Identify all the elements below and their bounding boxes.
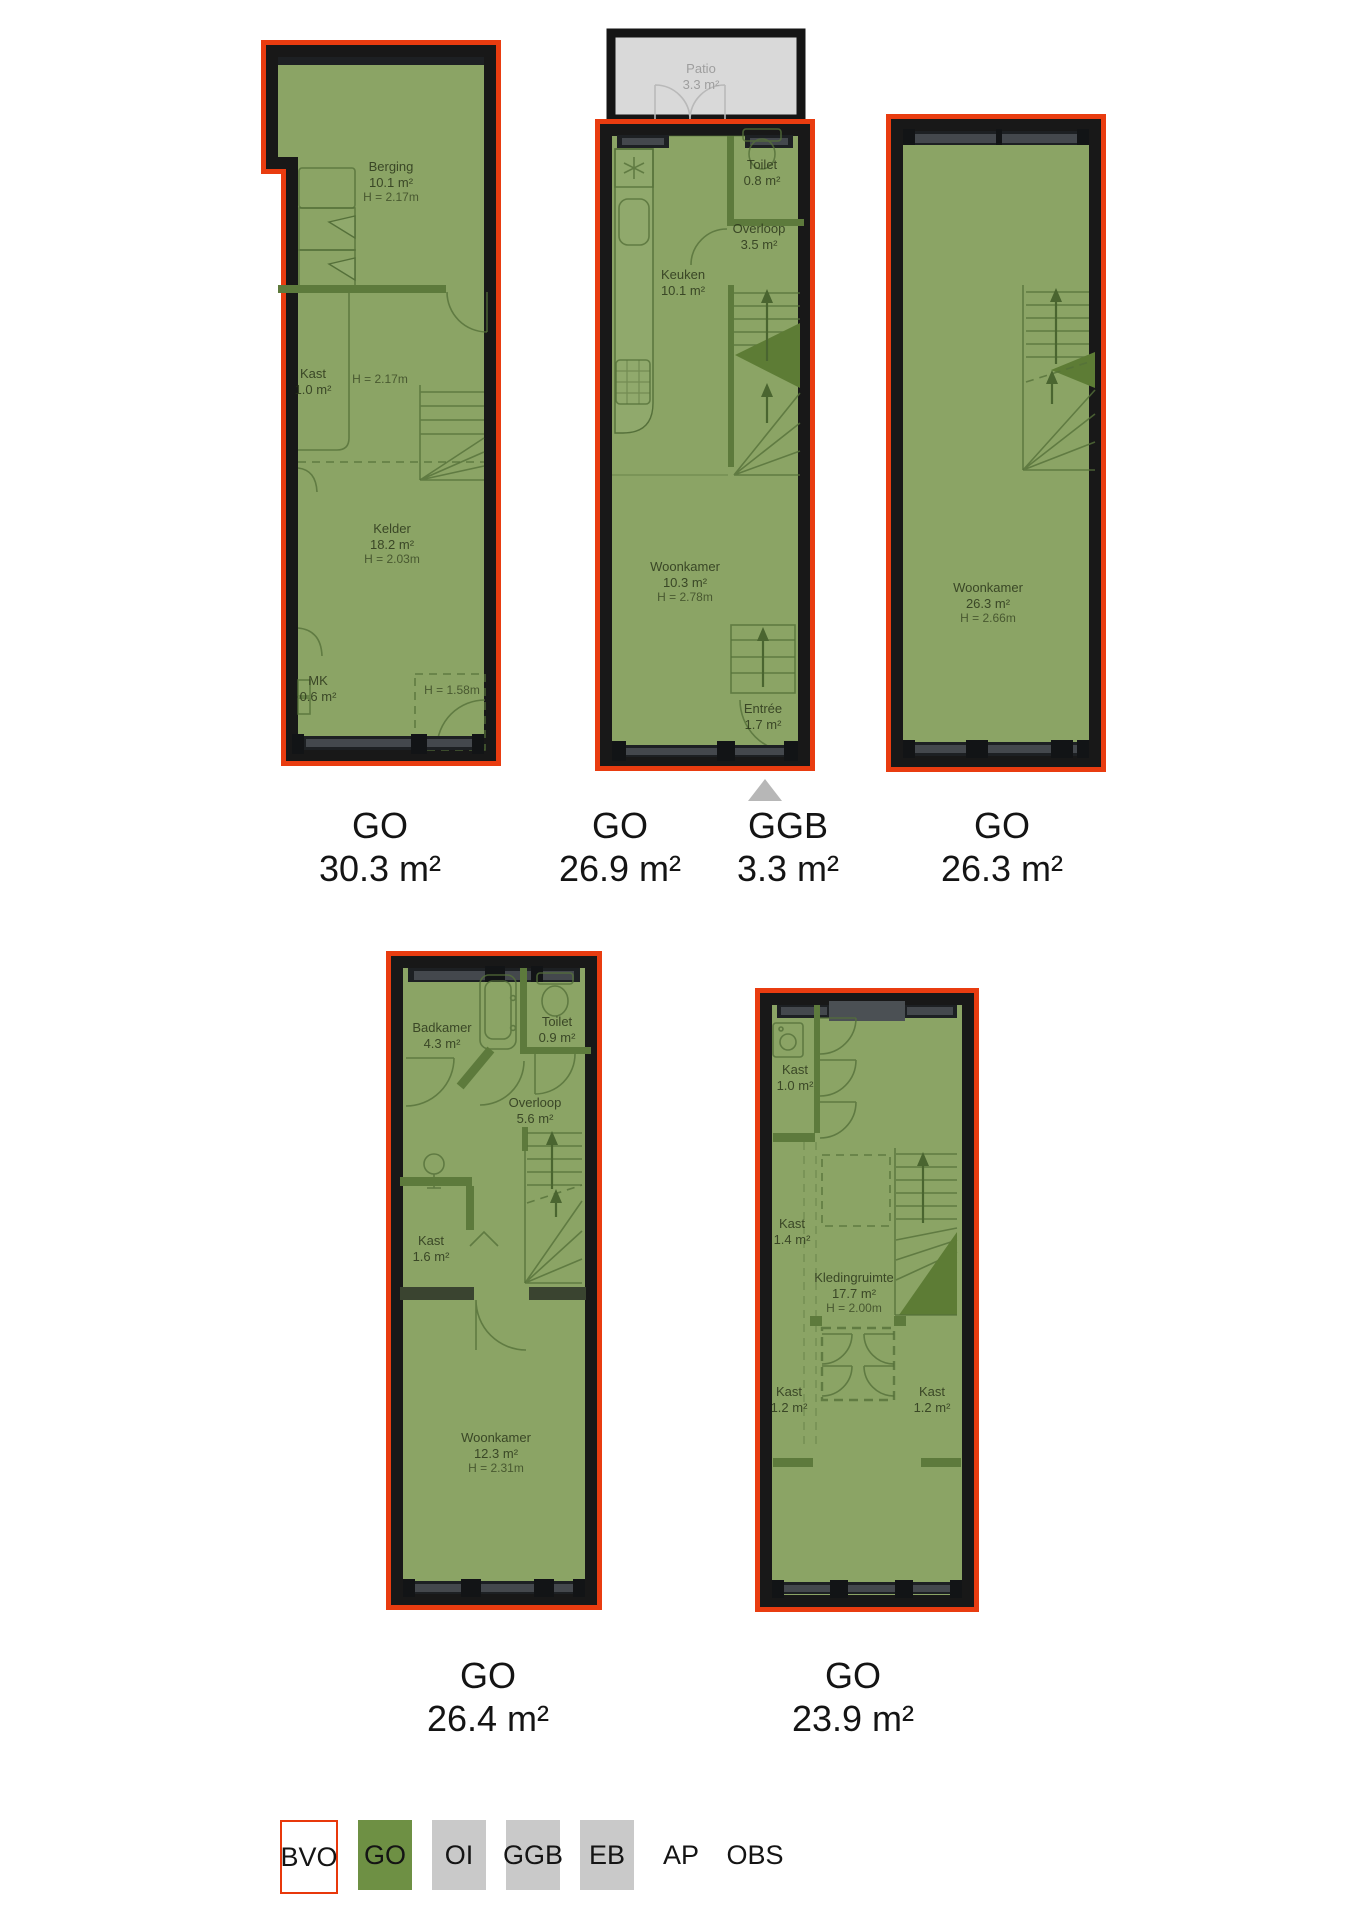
room-label-kast1: Kast 1.0 m² — [777, 1062, 814, 1093]
room-label-kast3: Kast 1.2 m² — [771, 1384, 808, 1415]
room-label-kast: Kast 1.6 m² — [413, 1233, 450, 1264]
room-label-patio: Patio 3.3 m² — [683, 61, 720, 92]
legend-item-go: GO — [358, 1820, 412, 1890]
room-label-kelder: Kelder 18.2 m² H = 2.03m — [364, 521, 420, 568]
room-label-kast: Kast 1.0 m² — [295, 366, 332, 397]
legend-item-bvo: BVO — [280, 1820, 338, 1894]
room-label-kledingruimte: Kledingruimte 17.7 m² H = 2.00m — [814, 1270, 894, 1317]
room-label-badkamer: Badkamer 4.3 m² — [412, 1020, 471, 1051]
room-label-toilet: Toilet 0.9 m² — [539, 1014, 576, 1045]
caption-begane-grond-go: GO 26.9 m² — [559, 804, 681, 890]
nen2580-floorplan-sheet: Berging 10.1 m² H = 2.17m Kast 1.0 m² H … — [0, 0, 1358, 1920]
room-label-keuken: Keuken 10.1 m² — [661, 267, 705, 298]
floorplan-begane-grond-drawing — [595, 23, 815, 771]
floorplan-souterrain: Berging 10.1 m² H = 2.17m Kast 1.0 m² H … — [261, 40, 501, 766]
caption-derde-verdieping: GO 23.9 m² — [792, 1654, 914, 1740]
floorplan-derde-verdieping: Kast 1.0 m² Kast 1.4 m² Kledingruimte 17… — [755, 988, 979, 1612]
legend-item-ggb: GGB — [506, 1820, 560, 1890]
floorplan-begane-grond: Patio 3.3 m² Toilet 0.8 m² Overloop 3.5 … — [595, 23, 815, 771]
room-label-overloop: Overloop 5.6 m² — [509, 1095, 562, 1126]
caption-souterrain: GO 30.3 m² — [319, 804, 441, 890]
room-label-kast4: Kast 1.2 m² — [914, 1384, 951, 1415]
floorplan-eerste-verdieping: Woonkamer 26.3 m² H = 2.66m — [886, 114, 1106, 772]
room-label-mk: MK 0.6 m² — [300, 673, 337, 704]
legend-item-ap: AP — [654, 1820, 708, 1890]
room-label-entree: Entrée 1.7 m² — [744, 701, 782, 732]
floorplan-souterrain-drawing — [261, 40, 501, 766]
room-label-kast2: Kast 1.4 m² — [774, 1216, 811, 1247]
room-label-woonkamer: Woonkamer 26.3 m² H = 2.66m — [953, 580, 1023, 627]
legend-item-oi: OI — [432, 1820, 486, 1890]
room-label-toilet: Toilet 0.8 m² — [744, 157, 781, 188]
room-label-low-height: H = 1.58m — [424, 683, 480, 699]
caption-eerste-verdieping: GO 26.3 m² — [941, 804, 1063, 890]
room-label-overloop: Overloop 3.5 m² — [733, 221, 786, 252]
north-arrow-icon — [748, 779, 782, 801]
legend-item-eb: EB — [580, 1820, 634, 1890]
room-label-woonkamer: Woonkamer 12.3 m² H = 2.31m — [461, 1430, 531, 1477]
room-label-kast-height: H = 2.17m — [352, 372, 408, 388]
room-label-woonkamer: Woonkamer 10.3 m² H = 2.78m — [650, 559, 720, 606]
legend-item-obs: OBS — [728, 1820, 782, 1890]
room-label-berging: Berging 10.1 m² H = 2.17m — [363, 159, 419, 206]
floorplan-tweede-verdieping: Badkamer 4.3 m² Toilet 0.9 m² Overloop 5… — [386, 951, 602, 1610]
legend: BVO GO OI GGB EB AP OBS — [280, 1820, 782, 1894]
caption-tweede-verdieping: GO 26.4 m² — [427, 1654, 549, 1740]
floorplan-eerste-verdieping-drawing — [886, 114, 1106, 772]
caption-begane-grond-ggb: GGB 3.3 m² — [737, 804, 839, 890]
